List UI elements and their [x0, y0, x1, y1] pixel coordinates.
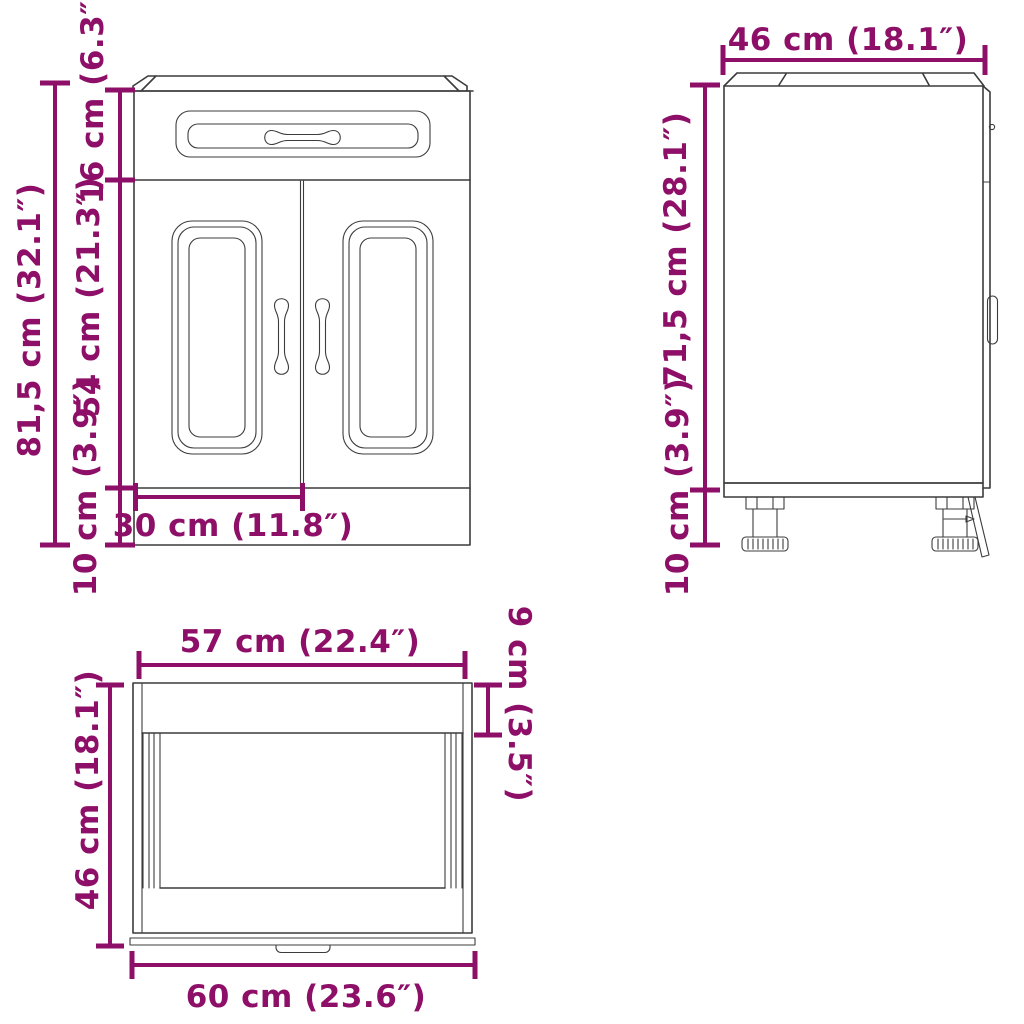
drawer-handle-icon — [265, 131, 341, 145]
side-body-height-label: 71,5 cm (28.1″) — [658, 112, 694, 387]
top-dimensions: 57 cm (22.4″) 9 cm (3.5″) 46 cm (18.1″) … — [70, 606, 537, 1015]
plinth-board — [968, 497, 989, 557]
countertop-side — [724, 73, 984, 86]
left-door-panel — [172, 221, 262, 454]
top-band-depth-label: 9 cm (3.5″) — [501, 606, 537, 802]
plinth-clip — [944, 516, 974, 522]
right-wall-lines — [445, 733, 462, 888]
top-depth-label: 46 cm (18.1″) — [70, 670, 106, 911]
bottom-board-side — [724, 483, 983, 497]
door-handle-profile — [988, 296, 998, 344]
front-edge-strip — [983, 86, 990, 488]
front-leg — [742, 497, 788, 551]
top-view-outline — [133, 683, 472, 933]
right-door-handle-icon — [316, 299, 330, 375]
left-door-handle-icon — [275, 299, 289, 375]
side-depth-label: 46 cm (18.1″) — [728, 22, 969, 58]
diagram-svg: 81,5 cm (32.1″) 16 cm (6.3″) 54 cm (21.3… — [0, 0, 1024, 1024]
back-leg — [932, 497, 978, 551]
left-wall-lines — [143, 733, 160, 888]
countertop-front — [131, 76, 473, 91]
side-view — [724, 73, 998, 557]
cabinet-body-side — [724, 86, 983, 483]
top-view — [130, 683, 475, 953]
right-door-panel — [343, 221, 433, 454]
dimension-diagram: 81,5 cm (32.1″) 16 cm (6.3″) 54 cm (21.3… — [0, 0, 1024, 1024]
front-plinth-height-label: 10 cm (3.9″) — [68, 378, 104, 597]
front-drawer-height-label: 16 cm (6.3″) — [75, 0, 111, 204]
side-leg-height-label: 10 cm (3.9″) — [660, 378, 696, 597]
front-view — [131, 76, 473, 545]
handle-top-profile — [276, 945, 330, 953]
side-dimensions: 46 cm (18.1″) 71,5 cm (28.1″) 10 cm (3.9… — [658, 22, 985, 596]
drawer-panel-inner — [188, 124, 418, 148]
top-outer-width-label: 60 cm (23.6″) — [186, 979, 427, 1015]
front-edge-strip-top — [130, 938, 475, 945]
front-total-height-label: 81,5 cm (32.1″) — [12, 183, 48, 458]
front-door-width-label: 30 cm (11.8″) — [113, 508, 354, 544]
cabinet-body-front — [134, 91, 470, 545]
front-dimensions: 81,5 cm (32.1″) 16 cm (6.3″) 54 cm (21.3… — [12, 0, 353, 596]
top-inner-width-label: 57 cm (22.4″) — [180, 624, 421, 660]
